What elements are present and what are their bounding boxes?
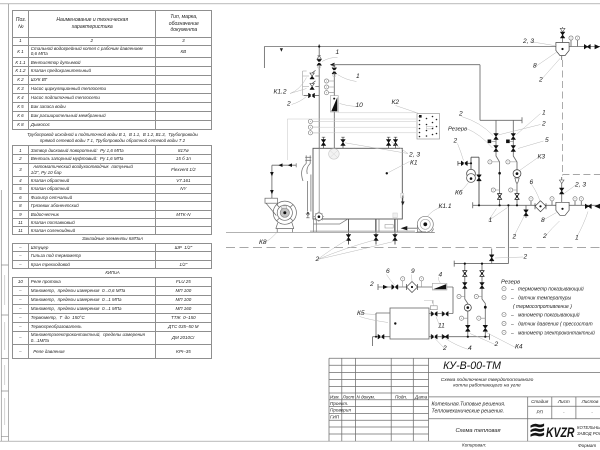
svg-text:котла работающего на угле: котла работающего на угле: [453, 382, 521, 388]
svg-text:Схема подключения твердотоплив: Схема подключения твердотопливного: [441, 377, 534, 383]
svg-text:Проверил: Проверил: [330, 408, 351, 413]
svg-text:Лист: Лист: [557, 399, 570, 404]
svg-text:Дата: Дата: [414, 394, 428, 399]
svg-text:Подп.: Подп.: [395, 394, 407, 399]
svg-text:-: -: [563, 410, 565, 415]
svg-text:ЗАВОД РОС: ЗАВОД РОС: [577, 431, 600, 436]
svg-text:Схема тепловая: Схема тепловая: [455, 428, 500, 434]
svg-text:KVZR: KVZR: [546, 424, 575, 440]
svg-text:N докум.: N докум.: [357, 394, 376, 399]
svg-text:Копировал:: Копировал:: [462, 443, 487, 448]
svg-text:Изм.: Изм.: [330, 394, 340, 399]
svg-text:-: -: [591, 410, 593, 415]
svg-text:Стадия: Стадия: [531, 399, 549, 404]
svg-text:Лист: Лист: [342, 394, 355, 399]
svg-text:Тепломеханические решения.: Тепломеханические решения.: [432, 409, 505, 415]
svg-text:КОТЕЛЬНЫ: КОТЕЛЬНЫ: [577, 425, 600, 430]
svg-text:Формат: Формат: [578, 443, 596, 448]
svg-text:ГИП: ГИП: [330, 414, 340, 419]
svg-text:Листов: Листов: [581, 399, 599, 404]
svg-text:Проект.: Проект.: [330, 401, 348, 406]
svg-text:Котельная.Типовые решения.: Котельная.Типовые решения.: [432, 402, 506, 408]
svg-text:КУ-В-00-ТМ: КУ-В-00-ТМ: [443, 360, 501, 372]
svg-text:РП: РП: [536, 410, 543, 415]
